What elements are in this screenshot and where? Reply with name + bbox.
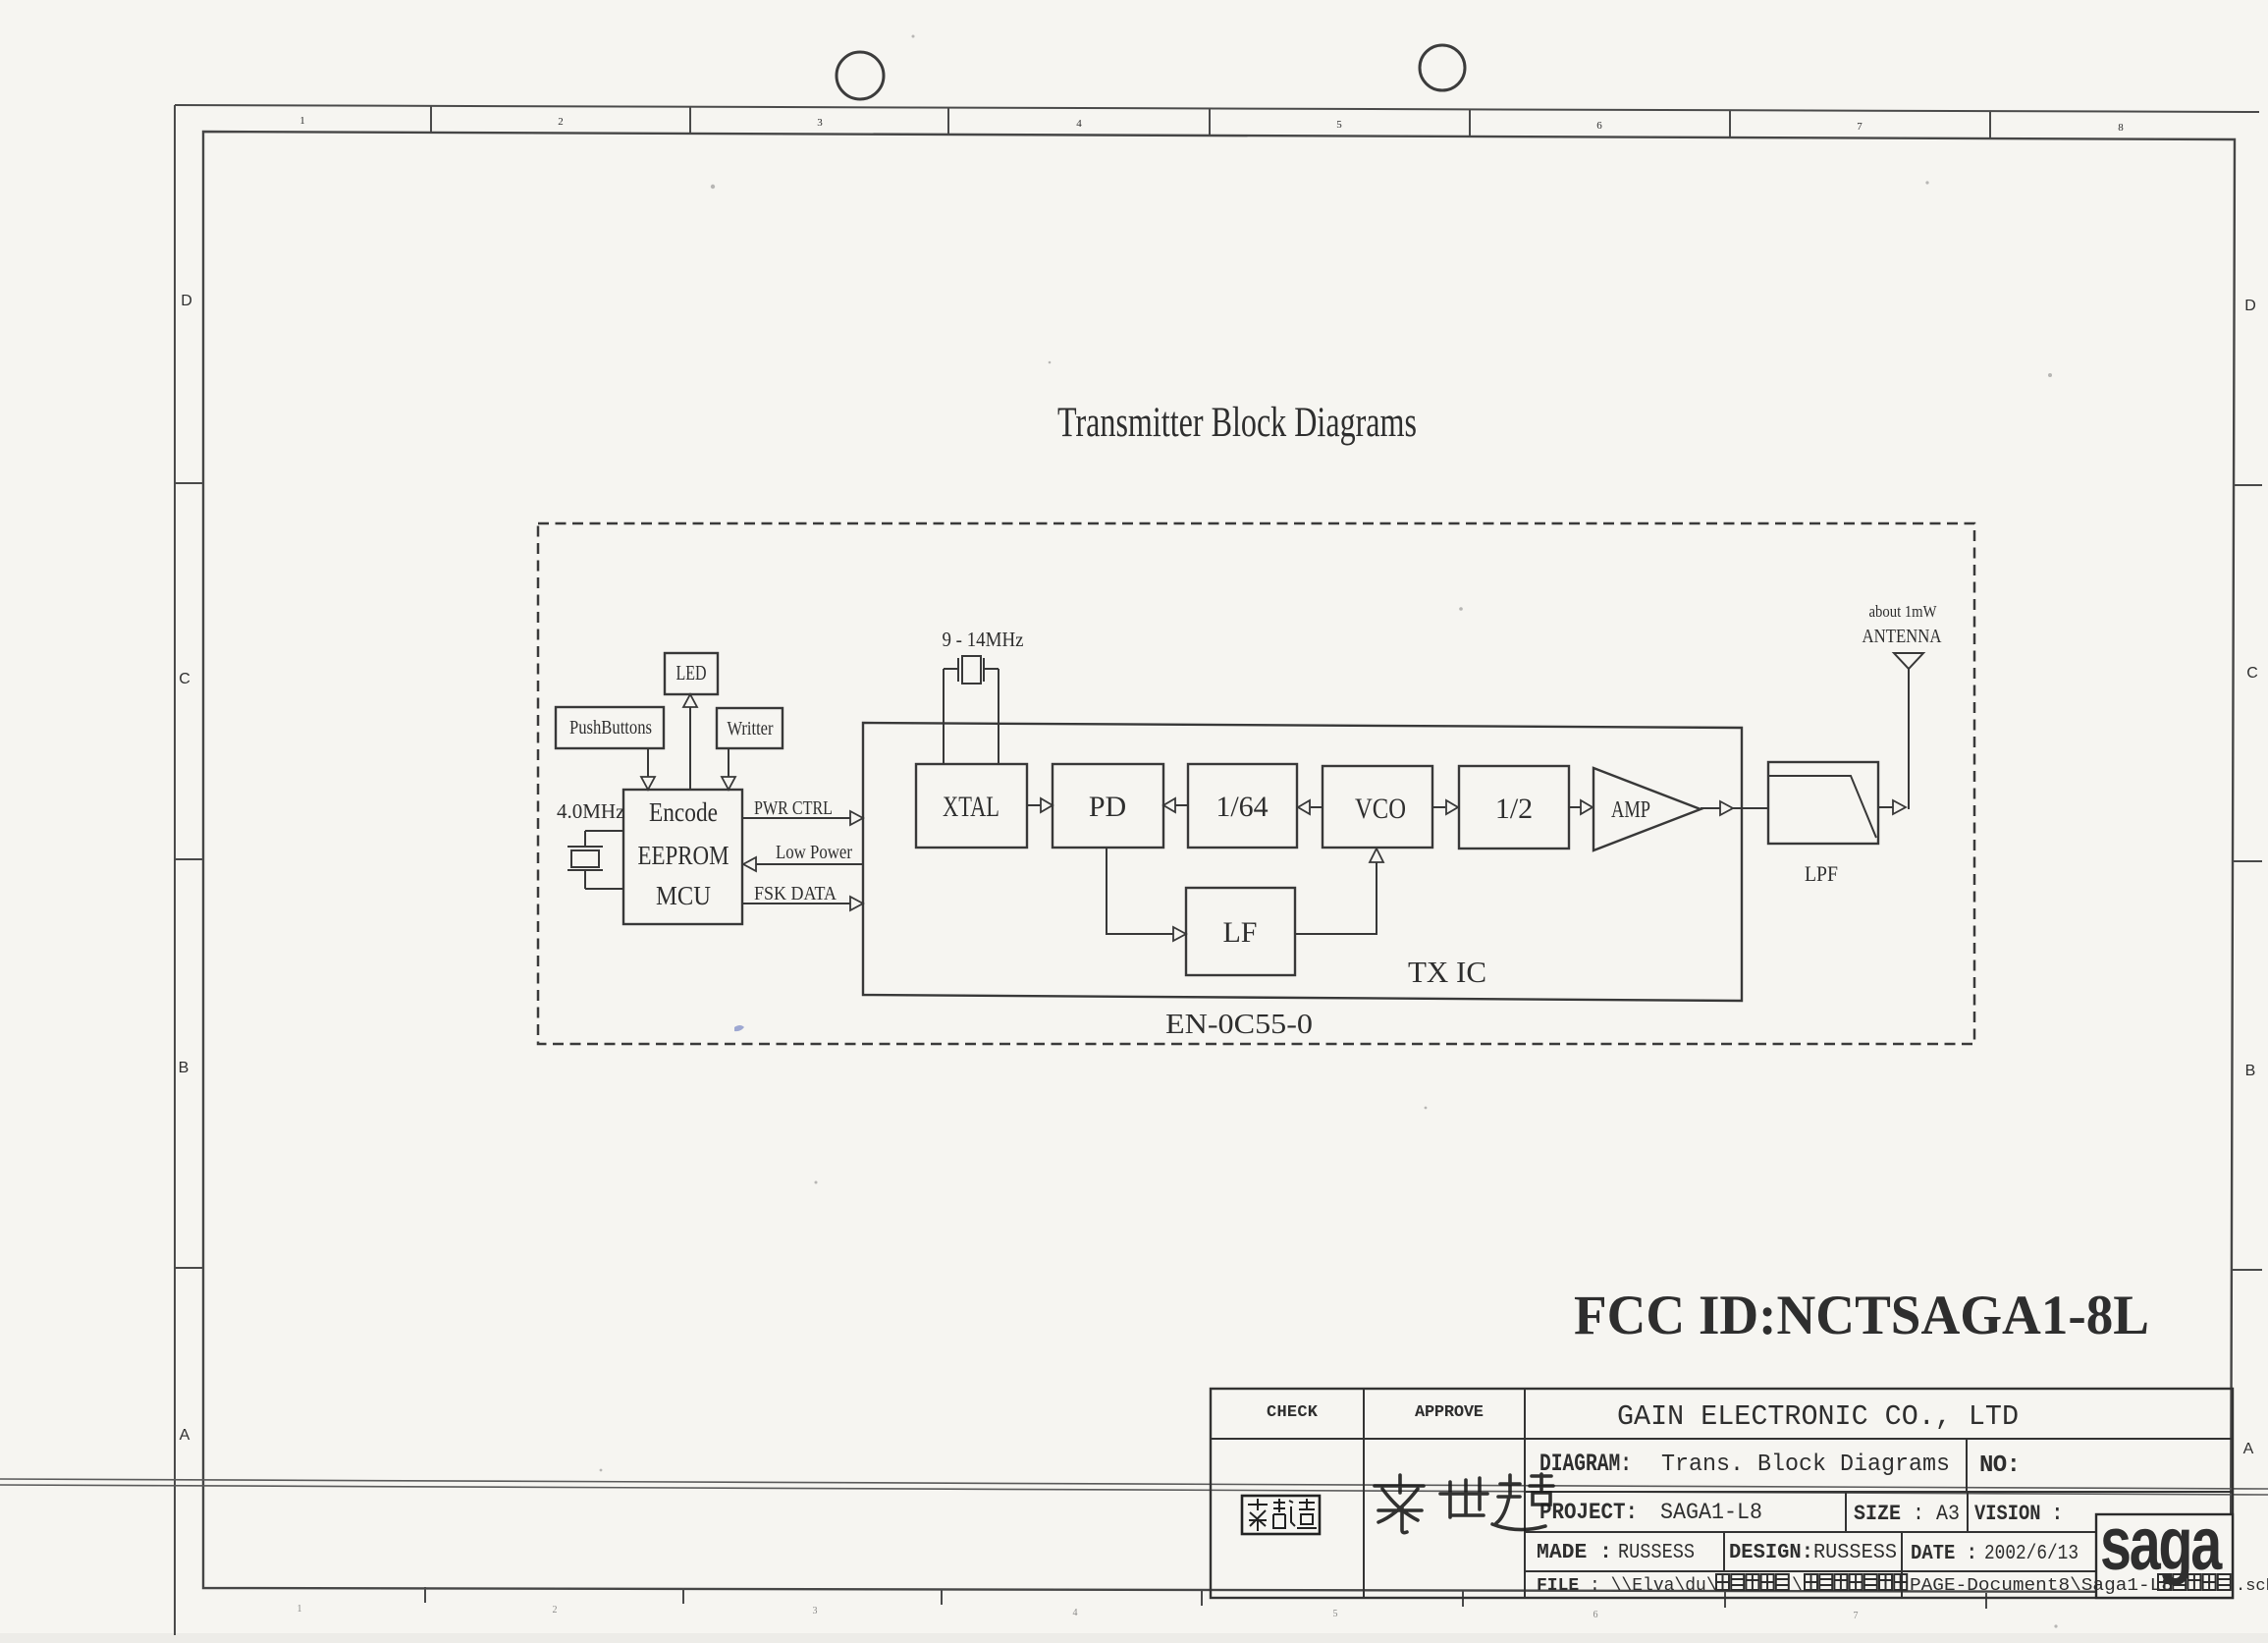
svg-text:.sch: .sch <box>2236 1577 2268 1596</box>
svg-text:Low Power: Low Power <box>776 842 852 863</box>
svg-text:SIZE : A3: SIZE : A3 <box>1854 1502 1960 1526</box>
svg-text:XTAL: XTAL <box>943 791 999 823</box>
svg-text:5: 5 <box>1333 1609 1338 1619</box>
svg-text:ANTENNA: ANTENNA <box>1863 626 1942 647</box>
svg-text:RUSSESS: RUSSESS <box>1813 1542 1897 1564</box>
svg-text:FILE : \\Elva\du\: FILE : \\Elva\du\ <box>1537 1576 1717 1596</box>
svg-text:7: 7 <box>1857 121 1863 133</box>
svg-text:DIAGRAM:: DIAGRAM: <box>1539 1450 1632 1478</box>
svg-text:EEPROM: EEPROM <box>638 841 729 870</box>
svg-text:AMP: AMP <box>1611 797 1650 823</box>
svg-text:2: 2 <box>553 1605 558 1616</box>
svg-text:Encode: Encode <box>649 797 718 827</box>
svg-text:LPF: LPF <box>1805 861 1838 886</box>
svg-text:PROJECT:: PROJECT: <box>1539 1500 1638 1525</box>
svg-text:1/2: 1/2 <box>1495 793 1533 825</box>
svg-text:3: 3 <box>813 1606 818 1616</box>
svg-text:A: A <box>180 1427 190 1444</box>
svg-text:1: 1 <box>299 115 305 127</box>
svg-text:7: 7 <box>1854 1611 1859 1621</box>
svg-text:PushButtons: PushButtons <box>569 717 652 739</box>
svg-text:FSK DATA: FSK DATA <box>754 883 837 904</box>
svg-text:C: C <box>179 671 190 687</box>
svg-text:C: C <box>2246 665 2258 682</box>
svg-text:about 1mW: about 1mW <box>1869 602 1938 621</box>
svg-text:1: 1 <box>297 1604 302 1615</box>
svg-text:MCU: MCU <box>656 881 711 910</box>
svg-text:9 - 14MHz: 9 - 14MHz <box>943 628 1024 651</box>
svg-text:EN-0C55-0: EN-0C55-0 <box>1165 1010 1313 1040</box>
svg-text:A: A <box>2243 1441 2254 1457</box>
svg-text:6: 6 <box>1596 120 1602 132</box>
svg-text:B: B <box>2245 1063 2256 1079</box>
svg-text:2: 2 <box>558 116 564 128</box>
svg-text:5: 5 <box>1336 119 1342 131</box>
svg-text:\: \ <box>1792 1576 1803 1596</box>
svg-text:CHECK: CHECK <box>1267 1403 1319 1422</box>
svg-text:TX IC: TX IC <box>1408 955 1486 989</box>
svg-text:GAIN ELECTRONIC CO., LTD: GAIN ELECTRONIC CO., LTD <box>1617 1400 2019 1433</box>
svg-text:B: B <box>179 1060 189 1076</box>
svg-text:2002/6/13: 2002/6/13 <box>1984 1543 2079 1565</box>
svg-text:RUSSESS: RUSSESS <box>1618 1542 1695 1564</box>
svg-text:DATE :: DATE : <box>1911 1543 1977 1565</box>
svg-text:4.0MHz: 4.0MHz <box>557 799 624 823</box>
svg-text:VCO: VCO <box>1355 793 1406 825</box>
svg-text:PAGE-Document8\Saga1-L8: PAGE-Document8\Saga1-L8 <box>1910 1576 2173 1596</box>
svg-text:NO:: NO: <box>1979 1452 2021 1479</box>
svg-text:LF: LF <box>1222 916 1257 949</box>
svg-text:Writter: Writter <box>728 718 774 739</box>
svg-text:Transmitter Block Diagrams: Transmitter Block Diagrams <box>1057 400 1417 446</box>
svg-text:APPROVE: APPROVE <box>1415 1403 1484 1422</box>
svg-text:Trans. Block Diagrams: Trans. Block Diagrams <box>1661 1451 1950 1478</box>
svg-text:FCC ID:NCTSAGA1-8L: FCC ID:NCTSAGA1-8L <box>1574 1285 2149 1346</box>
svg-text:PWR CTRL: PWR CTRL <box>754 797 833 819</box>
svg-text:1/64: 1/64 <box>1215 791 1268 823</box>
svg-text:4: 4 <box>1076 118 1082 130</box>
svg-text:D: D <box>2244 298 2256 314</box>
svg-text:DESIGN:: DESIGN: <box>1729 1542 1813 1564</box>
svg-text:VISION :: VISION : <box>1974 1502 2063 1526</box>
svg-text:LED: LED <box>676 661 707 685</box>
svg-text:MADE :: MADE : <box>1537 1542 1612 1564</box>
svg-text:PD: PD <box>1089 791 1126 823</box>
svg-text:4: 4 <box>1073 1608 1078 1618</box>
svg-text:8: 8 <box>2118 122 2124 134</box>
svg-text:6: 6 <box>1593 1610 1598 1620</box>
svg-text:D: D <box>181 293 192 309</box>
svg-text:SAGA1-L8: SAGA1-L8 <box>1660 1500 1762 1525</box>
svg-text:3: 3 <box>817 117 823 129</box>
